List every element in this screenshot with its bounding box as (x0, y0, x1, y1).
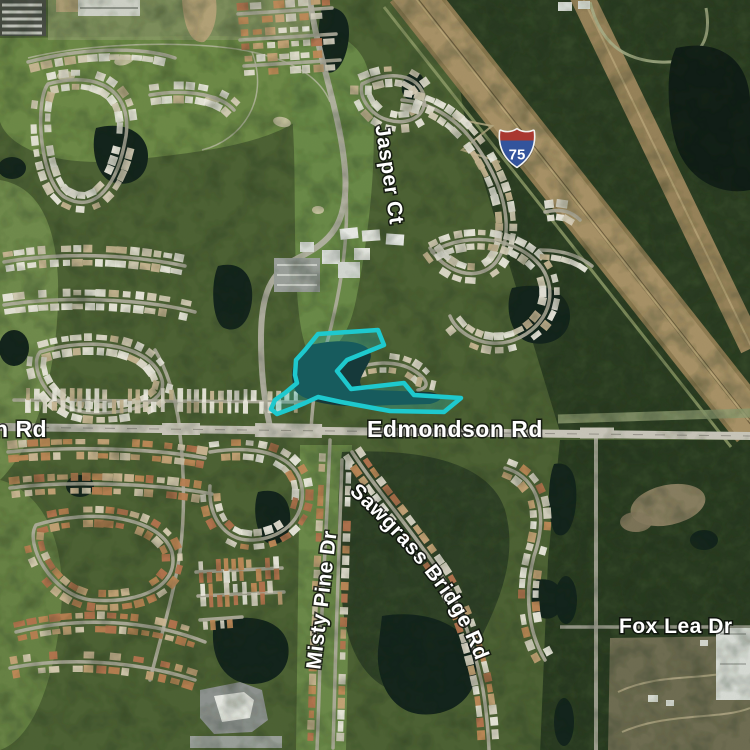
i75-shield-number: 75 (509, 147, 526, 164)
label-edmondson-rd: Edmondson Rd (367, 416, 543, 442)
label-road-left-partial: n Rd (0, 416, 47, 442)
label-fox-lea-dr: Fox Lea Dr (619, 615, 733, 638)
satellite-map-viewport[interactable]: n Rd Edmondson Rd Fox Lea Dr Jasper Ct M… (0, 0, 750, 750)
satellite-map-canvas[interactable]: n Rd Edmondson Rd Fox Lea Dr Jasper Ct M… (0, 0, 750, 750)
